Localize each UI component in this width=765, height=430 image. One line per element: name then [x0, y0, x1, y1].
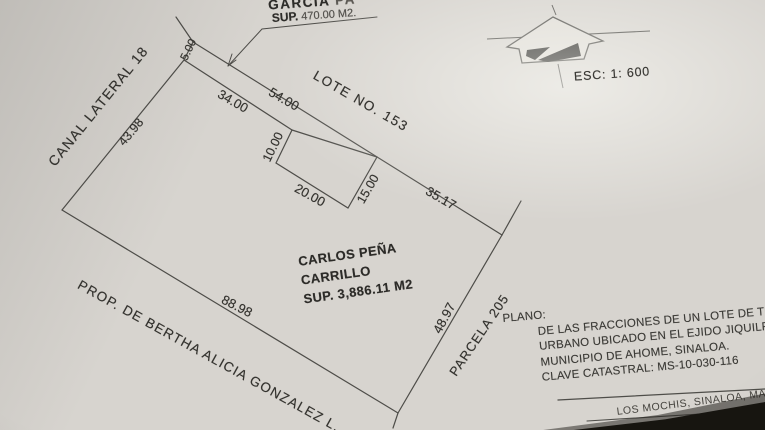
sup-label: SUP.: [271, 9, 298, 25]
survey-plan-photo: GARCIA PA SUP. 470.00 M2. ESC: 1: 600 LO…: [0, 0, 765, 430]
corner-tick-bottom: [393, 413, 398, 428]
corner-tick-topright: [502, 201, 521, 235]
leader-line: [228, 17, 377, 66]
footer-underline: [587, 410, 765, 421]
